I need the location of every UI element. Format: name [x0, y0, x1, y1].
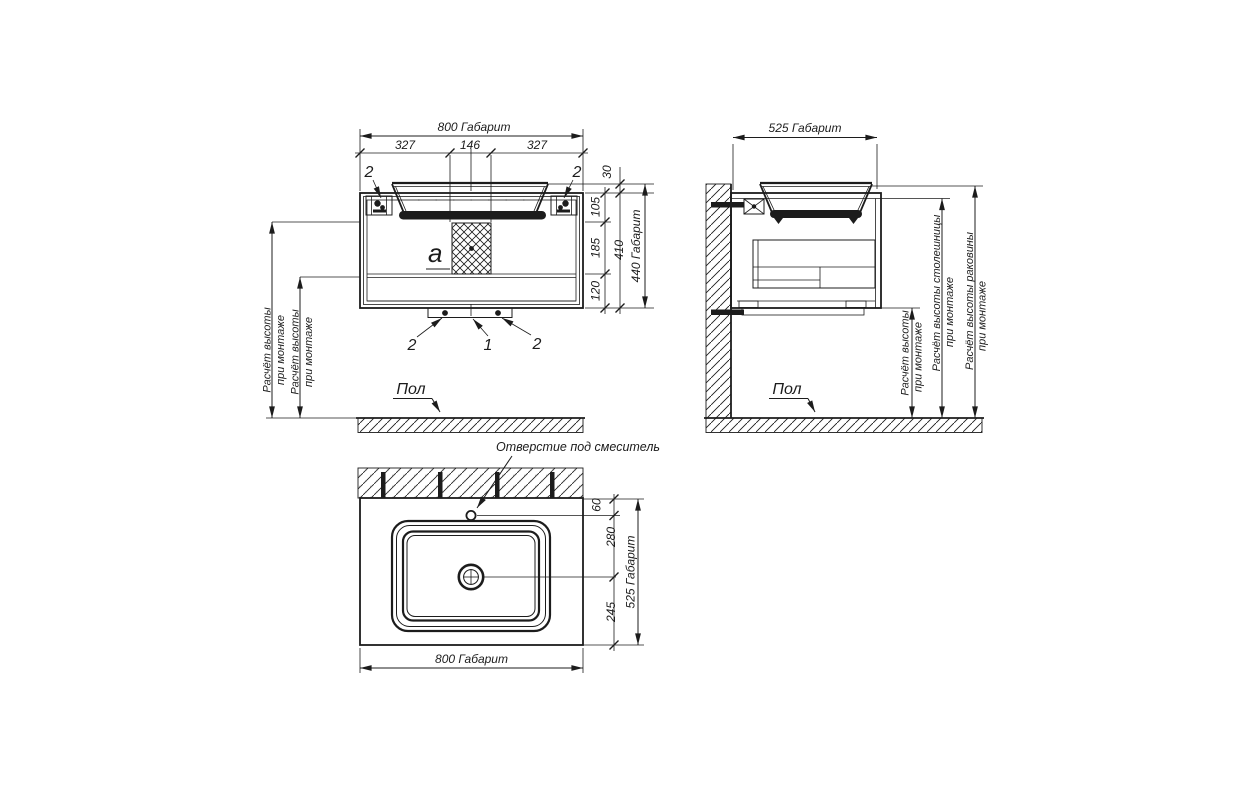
detail-a-label: a — [428, 238, 442, 268]
front-mount-height-2-line2: при монтаже — [303, 317, 315, 387]
plan-dim-800-label: 800 Габарит — [435, 652, 508, 666]
front-dim-800-label: 800 Габарит — [438, 120, 511, 134]
faucet-hole — [466, 511, 475, 520]
callout-1-bottom: 1 — [484, 337, 493, 354]
front-dim-105: 105 — [589, 197, 603, 217]
side-sink-height-line1: Расчёт высоты раковины — [964, 232, 976, 370]
front-dim-overall-width: 800 Габарит — [360, 120, 583, 191]
plan-dim-overall-width: 800 Габарит — [360, 648, 583, 673]
front-view: 800 Габарит 327 146 327 — [262, 120, 655, 433]
side-dim-525-label: 525 Габарит — [769, 121, 842, 135]
bracket-front-left — [366, 196, 392, 215]
plan-dim-60: 60 — [590, 498, 604, 512]
front-dim-410: 410 — [612, 240, 626, 260]
front-dim-146: 146 — [460, 138, 480, 152]
floor-label-side: Пол — [772, 381, 801, 398]
wall-anchor-bottom — [711, 310, 744, 316]
wall-section — [706, 184, 731, 418]
side-mount-height-line1: Расчёт высоты — [900, 310, 912, 395]
front-dim-30: 30 — [600, 165, 614, 179]
front-mount-height-1-line2: при монтаже — [275, 315, 287, 385]
front-mount-height-1-line1: Расчёт высоты — [262, 307, 274, 392]
technical-drawing: 800 Габарит 327 146 327 — [0, 0, 1251, 800]
plinth-front — [428, 308, 512, 318]
side-dim-overall-depth: 525 Габарит — [733, 121, 877, 190]
wall-plan — [358, 468, 583, 498]
side-dims-right: Расчёт высоты при монтаже Расчёт высоты … — [872, 186, 989, 418]
plan-dim-525-label: 525 Габарит — [624, 536, 638, 609]
floor-front: Пол — [266, 381, 585, 433]
front-mount-height-2-line1: Расчёт высоты — [290, 309, 302, 394]
drawing-page: 800 Габарит 327 146 327 — [0, 0, 1251, 800]
floor-label-front: Пол — [396, 381, 425, 398]
side-mount-height-line2: при монтаже — [913, 322, 925, 392]
wall-anchor-top — [711, 202, 744, 208]
side-countertop-height-line2: при монтаже — [944, 277, 956, 347]
drain-plan — [459, 565, 483, 589]
front-dim-440-label: 440 Габарит — [629, 210, 643, 283]
sink-side-outline — [760, 183, 872, 224]
side-sink-height-line2: при монтаже — [977, 281, 989, 351]
side-view: 525 Габарит Расчёт высоты при монтаже Ра… — [704, 121, 989, 433]
front-dim-segments: 327 146 327 — [355, 138, 588, 222]
front-dims-left: Расчёт высоты при монтаже Расчёт высоты … — [262, 222, 361, 418]
detail-a-block: a — [426, 223, 491, 274]
front-dim-185: 185 — [589, 238, 603, 258]
front-dim-327-left: 327 — [395, 138, 416, 152]
callout-2-bottom-left: 2 — [407, 337, 417, 354]
sink-front-outline — [392, 183, 548, 220]
front-dim-327-right: 327 — [527, 138, 548, 152]
plan-dims-right: 60 280 245 525 Габарит — [477, 494, 644, 651]
bracket-side — [744, 199, 764, 214]
front-dims-right: 105 185 120 30 410 440 Габарит — [548, 165, 654, 314]
front-dim-120: 120 — [589, 281, 603, 301]
plan-dim-245: 245 — [604, 602, 618, 623]
callout-2-top-right: 2 — [572, 164, 582, 181]
bracket-front-right — [551, 196, 577, 215]
side-countertop-height-line1: Расчёт высоты столешницы — [931, 215, 943, 372]
callout-2-bottom-right: 2 — [532, 336, 542, 353]
plan-view: Отверстие под смеситель 60 280 245 525 Г… — [358, 440, 660, 673]
callout-2-top-left: 2 — [364, 164, 374, 181]
faucet-hole-label: Отверстие под смеситель — [496, 440, 660, 454]
plan-dim-280: 280 — [604, 527, 618, 548]
